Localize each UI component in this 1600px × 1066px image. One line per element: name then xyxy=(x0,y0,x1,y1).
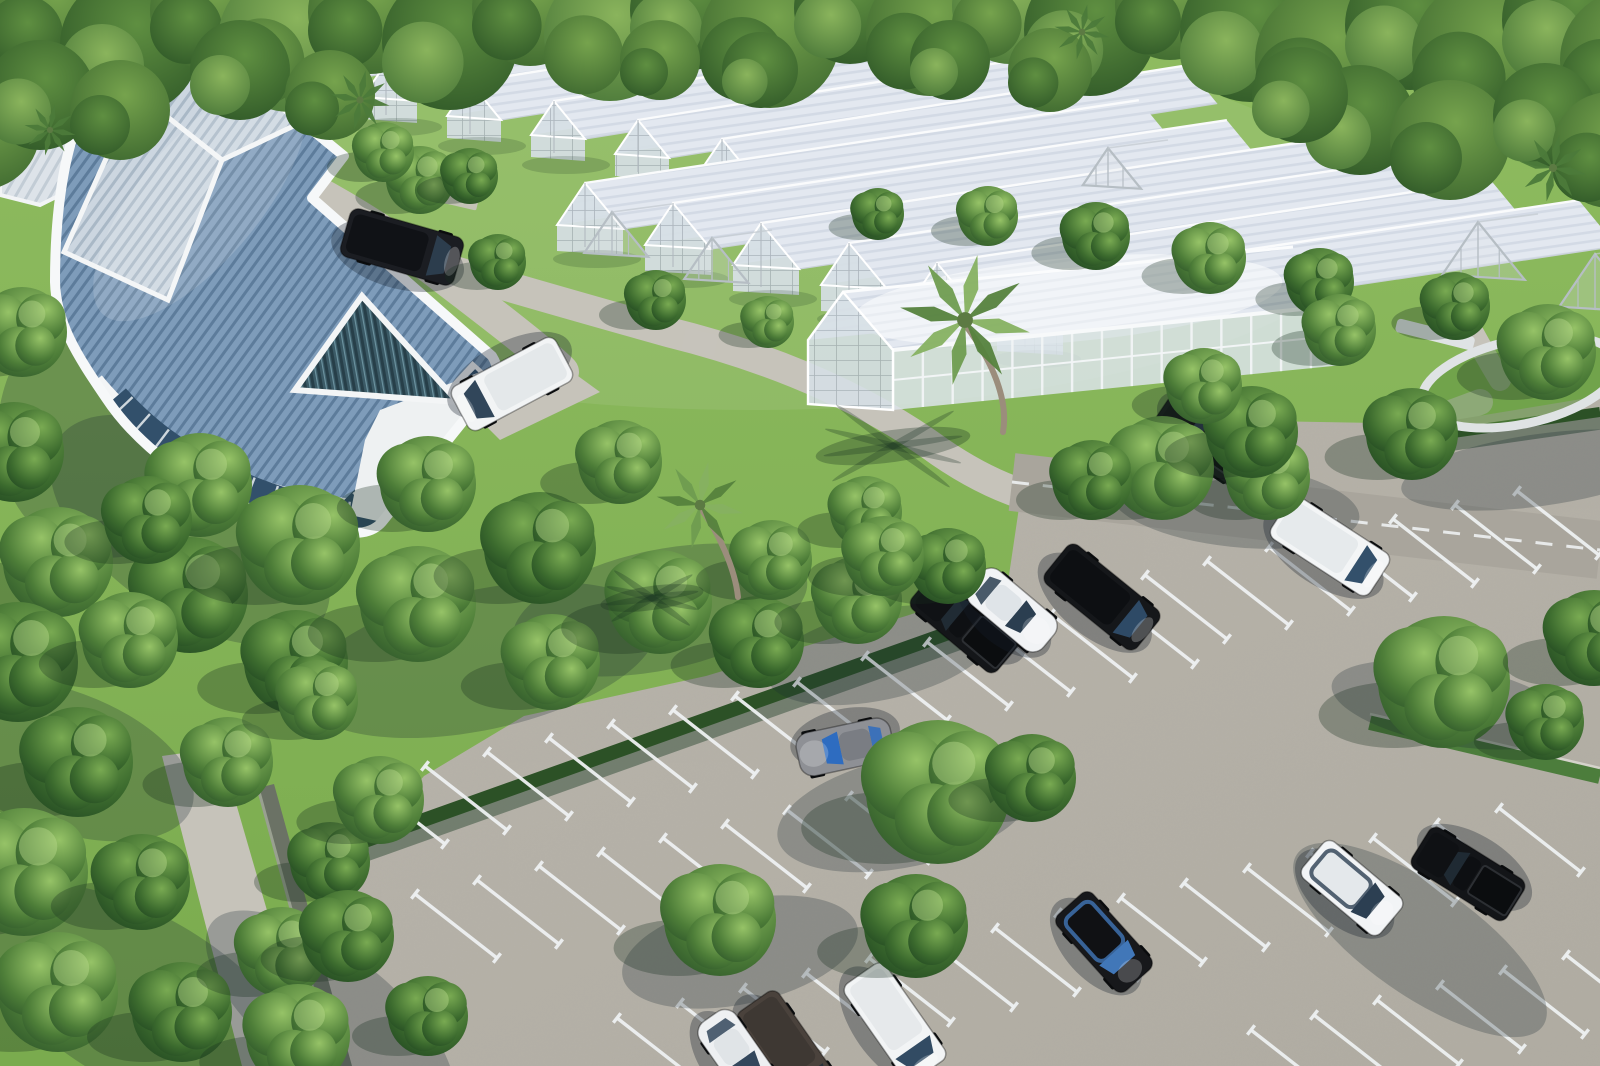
aerial-render-greenhouse-campus xyxy=(0,0,1600,1066)
scene-canvas xyxy=(0,0,1600,1066)
